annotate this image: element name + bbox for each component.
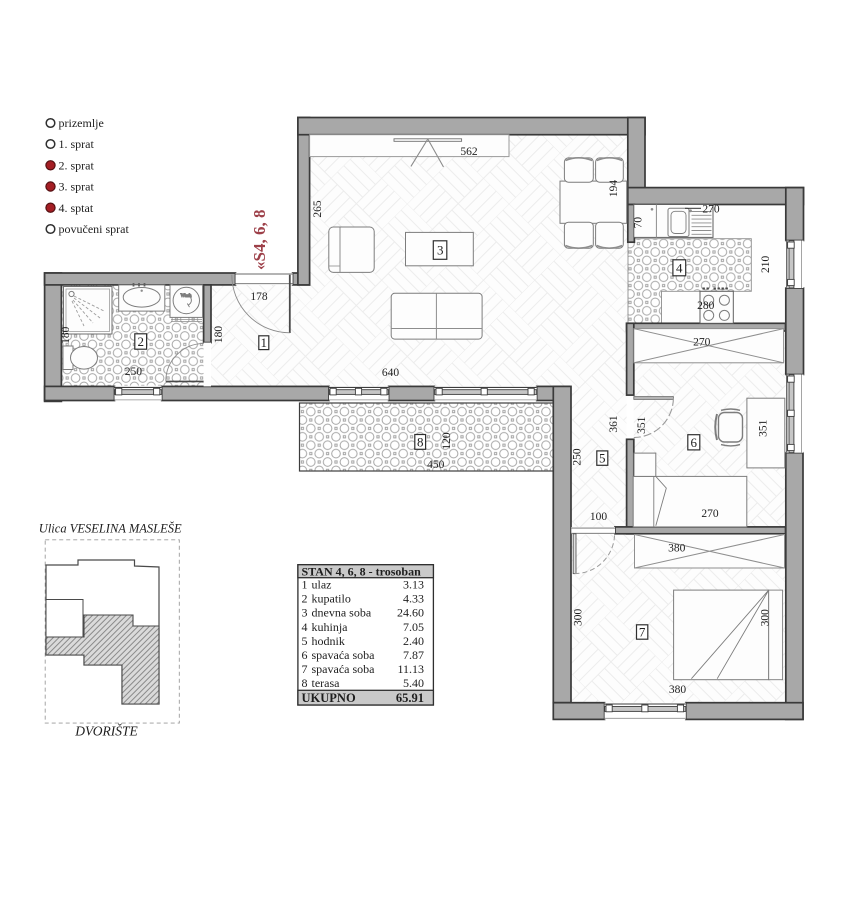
svg-text:2: 2 bbox=[302, 592, 308, 606]
svg-text:6: 6 bbox=[691, 435, 698, 450]
svg-text:prizemlje: prizemlje bbox=[59, 116, 104, 130]
svg-text:5: 5 bbox=[302, 634, 308, 648]
svg-text:spavaća soba: spavaća soba bbox=[312, 648, 376, 662]
svg-text:7: 7 bbox=[639, 624, 646, 639]
svg-text:250: 250 bbox=[125, 366, 143, 378]
svg-text:640: 640 bbox=[382, 367, 400, 379]
svg-text:300: 300 bbox=[573, 608, 585, 626]
svg-text:3: 3 bbox=[437, 243, 444, 258]
svg-text:2. sprat: 2. sprat bbox=[59, 159, 95, 173]
svg-text:265: 265 bbox=[312, 200, 324, 218]
svg-text:spavaća soba: spavaća soba bbox=[312, 662, 376, 676]
svg-text:65.91: 65.91 bbox=[396, 691, 424, 705]
svg-text:270: 270 bbox=[693, 337, 711, 349]
svg-text:450: 450 bbox=[427, 459, 445, 471]
svg-text:4: 4 bbox=[302, 620, 308, 634]
svg-text:6: 6 bbox=[302, 648, 308, 662]
svg-text:380: 380 bbox=[668, 543, 686, 555]
svg-text:hodnik: hodnik bbox=[312, 634, 345, 648]
svg-text:5: 5 bbox=[599, 450, 606, 465]
svg-text:DVORIŠTE: DVORIŠTE bbox=[74, 724, 138, 739]
svg-text:2.40: 2.40 bbox=[403, 634, 424, 648]
svg-text:8: 8 bbox=[302, 676, 308, 690]
svg-text:7.87: 7.87 bbox=[403, 648, 424, 662]
svg-text:«S4, 6, 8: «S4, 6, 8 bbox=[250, 210, 269, 270]
svg-text:Ulica VESELINA MASLEŠE: Ulica VESELINA MASLEŠE bbox=[39, 522, 182, 536]
svg-text:kupatilo: kupatilo bbox=[312, 592, 351, 606]
svg-text:194: 194 bbox=[608, 180, 620, 198]
svg-text:270: 270 bbox=[701, 508, 719, 520]
svg-text:STAN 4, 6, 8 - trosoban: STAN 4, 6, 8 - trosoban bbox=[302, 564, 422, 578]
svg-text:terasa: terasa bbox=[312, 676, 341, 690]
svg-text:4. sptat: 4. sptat bbox=[59, 201, 94, 215]
svg-text:4: 4 bbox=[676, 261, 683, 276]
svg-text:3: 3 bbox=[302, 606, 308, 620]
svg-text:5.40: 5.40 bbox=[403, 676, 424, 690]
svg-text:ulaz: ulaz bbox=[312, 578, 332, 592]
svg-text:7.05: 7.05 bbox=[403, 620, 424, 634]
svg-text:300: 300 bbox=[759, 609, 771, 627]
svg-text:250: 250 bbox=[572, 448, 584, 466]
svg-text:2: 2 bbox=[137, 334, 144, 349]
svg-text:4.33: 4.33 bbox=[403, 592, 424, 606]
svg-text:Wash: Wash bbox=[181, 294, 192, 299]
svg-text:kuhinja: kuhinja bbox=[312, 620, 349, 634]
svg-text:24.60: 24.60 bbox=[397, 606, 424, 620]
svg-text:180: 180 bbox=[60, 326, 72, 344]
svg-text:1: 1 bbox=[261, 335, 268, 350]
svg-text:7: 7 bbox=[302, 662, 308, 676]
svg-text:351: 351 bbox=[758, 419, 770, 437]
svg-text:1. sprat: 1. sprat bbox=[59, 137, 95, 151]
svg-text:8: 8 bbox=[417, 434, 424, 449]
svg-text:povučeni sprat: povučeni sprat bbox=[59, 222, 130, 236]
svg-text:UKUPNO: UKUPNO bbox=[302, 691, 356, 705]
svg-text:120: 120 bbox=[441, 432, 453, 450]
svg-text:11.13: 11.13 bbox=[397, 662, 424, 676]
svg-text:380: 380 bbox=[669, 684, 687, 696]
svg-text:562: 562 bbox=[460, 146, 478, 158]
svg-text:270: 270 bbox=[702, 204, 720, 216]
svg-text:70: 70 bbox=[633, 217, 645, 229]
svg-text:dnevna soba: dnevna soba bbox=[312, 606, 372, 620]
svg-text:3.13: 3.13 bbox=[403, 578, 424, 592]
svg-text:210: 210 bbox=[760, 255, 772, 273]
svg-text:180: 180 bbox=[213, 326, 225, 344]
svg-text:280: 280 bbox=[697, 300, 715, 312]
svg-text:100: 100 bbox=[590, 511, 608, 523]
svg-text:361: 361 bbox=[608, 415, 620, 433]
svg-text:3. sprat: 3. sprat bbox=[59, 180, 95, 194]
svg-text:178: 178 bbox=[250, 291, 268, 303]
svg-text:351: 351 bbox=[636, 416, 648, 434]
svg-text:1: 1 bbox=[302, 578, 308, 592]
